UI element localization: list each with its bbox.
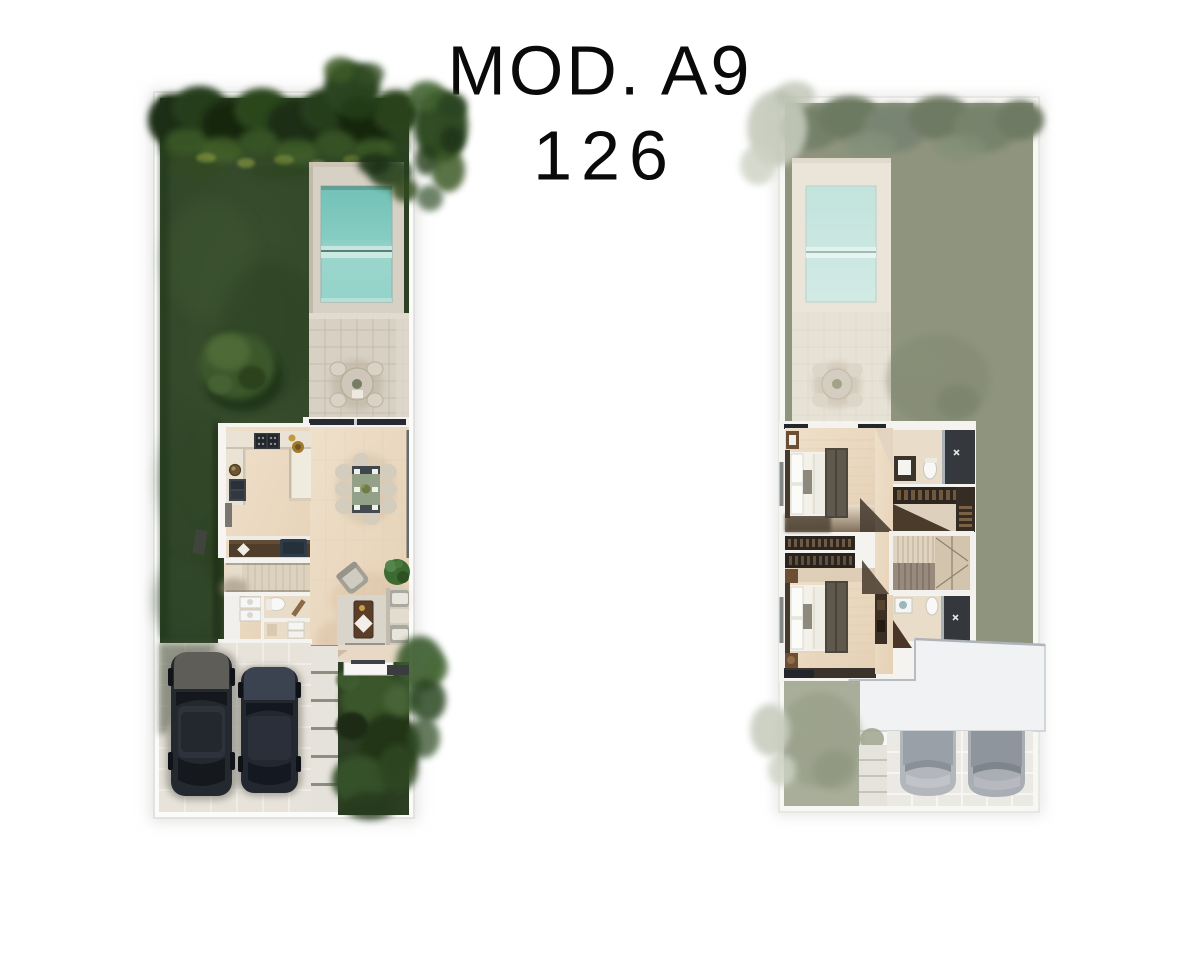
svg-text:126: 126 <box>533 117 677 195</box>
svg-text:MOD. A9: MOD. A9 <box>448 32 753 110</box>
